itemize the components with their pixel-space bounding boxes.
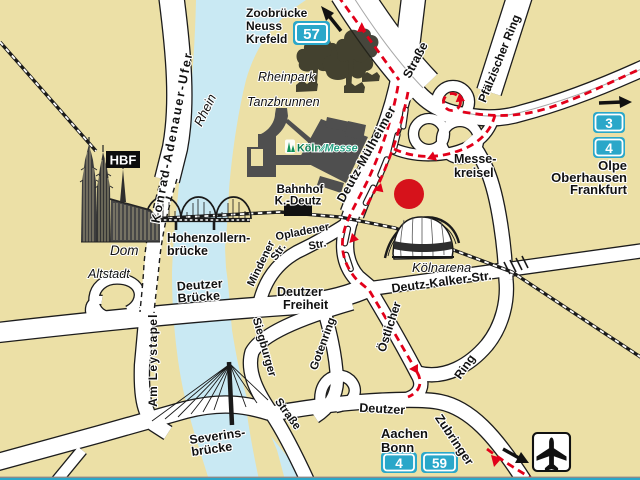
- svg-text:Bonn: Bonn: [381, 440, 414, 455]
- svg-text:brücke: brücke: [167, 244, 208, 258]
- svg-text:Freiheit: Freiheit: [283, 298, 329, 312]
- svg-text:kreisel: kreisel: [454, 166, 494, 180]
- svg-text:3: 3: [605, 116, 613, 131]
- svg-text:Dom: Dom: [110, 243, 139, 258]
- svg-text:Tanzbrunnen: Tanzbrunnen: [247, 95, 320, 109]
- svg-text:Zoobrücke: Zoobrücke: [246, 6, 308, 20]
- svg-text:Aachen: Aachen: [381, 426, 428, 441]
- svg-text:Rheinpark: Rheinpark: [258, 70, 316, 84]
- svg-text:Deutzer: Deutzer: [277, 285, 323, 299]
- svg-text:Brücke: Brücke: [177, 289, 220, 306]
- svg-text:HBF: HBF: [110, 153, 137, 168]
- svg-text:4: 4: [395, 456, 403, 471]
- svg-text:4: 4: [605, 141, 613, 156]
- svg-text:Deutzer: Deutzer: [359, 401, 406, 417]
- svg-text:Krefeld: Krefeld: [246, 32, 287, 46]
- svg-text:Neuss: Neuss: [246, 19, 282, 33]
- svg-text:K.-Deutz: K.-Deutz: [275, 196, 322, 208]
- svg-text:Am Leystapel: Am Leystapel: [146, 313, 160, 407]
- svg-text:59: 59: [432, 456, 447, 471]
- svg-text:Frankfurt: Frankfurt: [570, 182, 628, 197]
- svg-text:Messe-: Messe-: [454, 152, 496, 166]
- svg-text:Hohenzollern-: Hohenzollern-: [167, 231, 250, 245]
- svg-text:Altstadt: Altstadt: [87, 267, 130, 281]
- svg-text:57: 57: [303, 26, 320, 43]
- svg-text:Köln∕∕Messe: Köln∕∕Messe: [297, 143, 358, 155]
- svg-text:Bahnhof: Bahnhof: [277, 184, 324, 196]
